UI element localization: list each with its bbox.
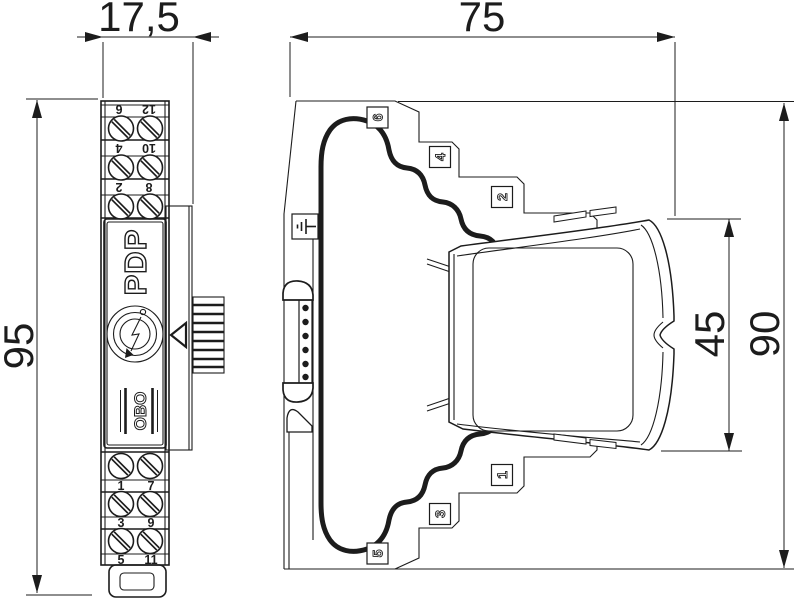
terminal-label: 8 (145, 180, 152, 194)
rail-hole (302, 333, 308, 339)
front-view: 12 6 10 4 8 2 (101, 101, 224, 597)
terminal-label: 2 (115, 180, 122, 194)
contact-label: 5 (370, 549, 386, 557)
contact-label: 4 (432, 153, 448, 161)
contact-label: 6 (370, 113, 386, 121)
rail-hole (302, 361, 308, 367)
dimension-side-depth: 75 (290, 0, 675, 216)
brand-logo: OBO (121, 388, 158, 434)
din-rail (283, 281, 313, 432)
terminal-label: 4 (115, 141, 122, 155)
terminal-screws (109, 116, 163, 219)
surge-logo-icon (107, 306, 163, 362)
lightning-bolt-icon (125, 309, 146, 358)
dimension-module-height: 45 (661, 219, 742, 451)
rail-hole (302, 374, 308, 380)
top-terminal-block: 12 6 10 4 8 2 (101, 102, 169, 219)
dimension-front-height: 95 (0, 99, 98, 595)
dimension-side-height-label: 90 (741, 311, 788, 358)
brand-label: OBO (131, 392, 150, 431)
pdp-module-plate: PDP OBO (104, 219, 166, 448)
dimension-side-depth-label: 75 (459, 0, 506, 40)
dimension-module-height-label: 45 (686, 311, 733, 358)
terminal-label: 12 (142, 102, 156, 116)
contact-label: 3 (432, 510, 448, 518)
contact-label: 1 (494, 471, 510, 479)
terminal-label: 10 (142, 141, 156, 155)
rail-hole (302, 319, 308, 325)
rail-hole (302, 305, 308, 311)
rail-clip (283, 383, 313, 402)
plug-ribs (193, 297, 224, 373)
dimension-front-height-label: 95 (0, 323, 42, 370)
dimension-front-width-label: 17,5 (98, 0, 180, 40)
module-outline (449, 220, 674, 450)
technical-drawing: 12 6 10 4 8 2 (0, 0, 794, 598)
terminal-label: 6 (115, 102, 122, 116)
module-tab (590, 207, 616, 217)
bottom-terminal-block: 1 7 3 9 5 11 (101, 452, 169, 567)
contact-label: 2 (494, 193, 510, 201)
ground-symbol (292, 214, 318, 239)
rail-hole (302, 347, 308, 353)
rail-clip (283, 281, 313, 300)
plug-module (449, 207, 674, 450)
din-release-tab (109, 565, 166, 597)
model-label: PDP (118, 229, 153, 296)
direction-triangle-icon (171, 323, 186, 347)
terminal-screws (109, 454, 163, 554)
rail-latch (287, 410, 312, 432)
